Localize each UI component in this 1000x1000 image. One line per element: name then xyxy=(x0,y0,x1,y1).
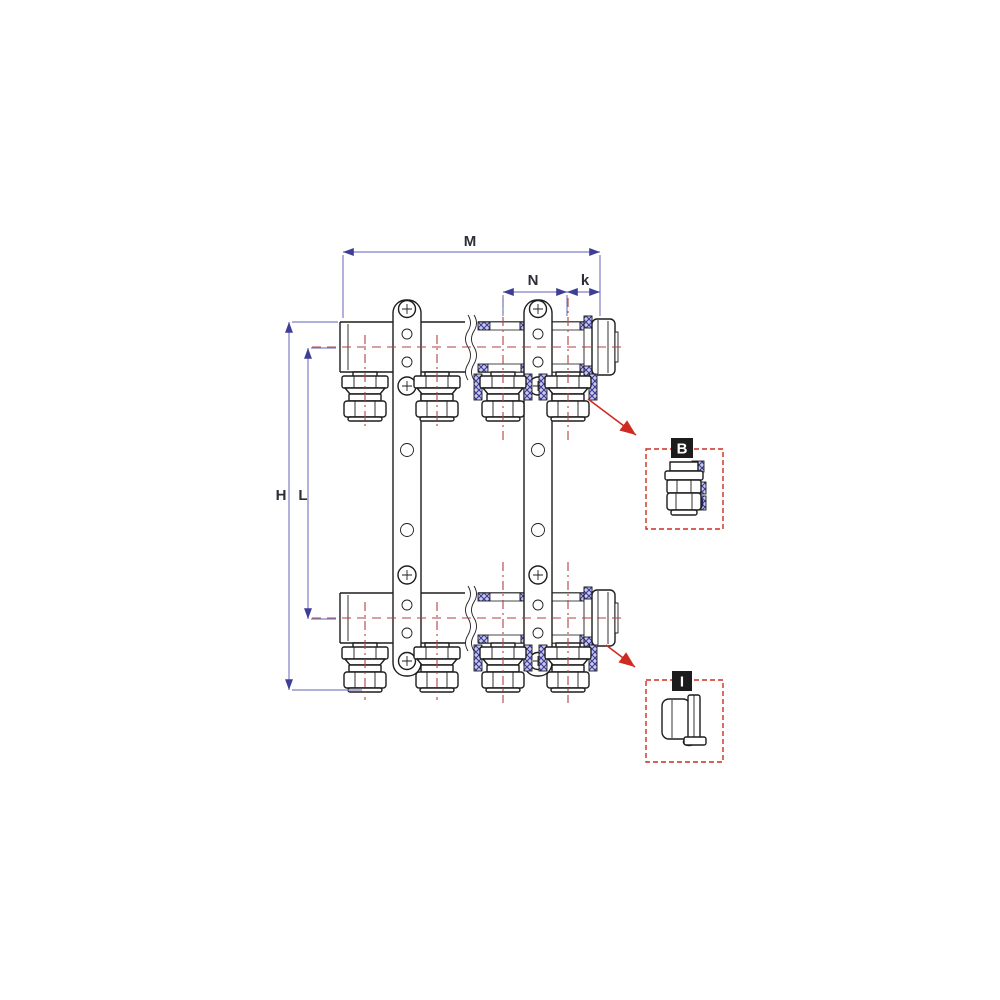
dimension-k: k xyxy=(567,272,600,292)
dimension-h-label: H xyxy=(276,487,287,504)
upper-outlet-fittings xyxy=(342,372,597,421)
manifold-technical-drawing: M N k H L B xyxy=(0,0,1000,1000)
dimension-m: M xyxy=(343,233,600,318)
callout-i-label: I xyxy=(680,674,684,691)
detail-i-cap xyxy=(662,695,706,746)
mounting-bracket-right xyxy=(524,300,552,676)
callout-b: B xyxy=(646,438,723,529)
callout-b-label: B xyxy=(677,441,688,458)
dimension-m-label: M xyxy=(464,233,477,250)
mounting-bracket-left xyxy=(393,300,421,676)
lower-outlet-fittings xyxy=(342,643,597,692)
drawing-canvas: M N k H L B xyxy=(0,0,1000,1000)
dimension-n-label: N xyxy=(528,272,539,289)
dimension-l: L xyxy=(298,348,336,619)
callout-i: I xyxy=(646,671,723,762)
dimension-k-label: k xyxy=(581,272,590,289)
detail-b-fitting xyxy=(665,461,706,515)
callout-i-arrow xyxy=(606,645,635,667)
dimension-l-label: L xyxy=(298,487,307,504)
callout-b-arrow xyxy=(588,399,636,435)
